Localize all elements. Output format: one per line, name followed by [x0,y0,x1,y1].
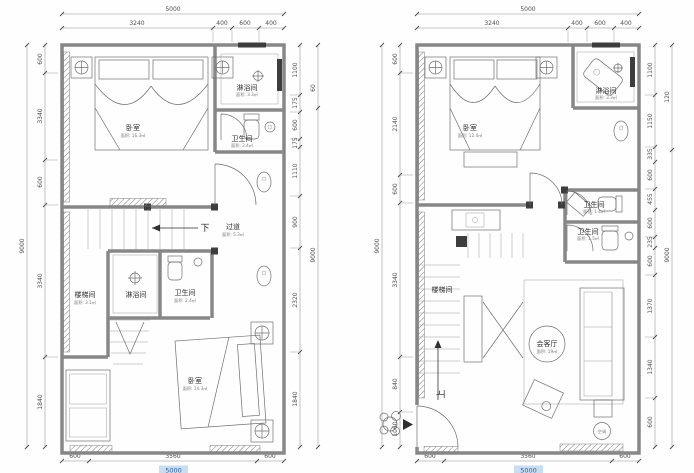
dim-label: 1840 [37,394,44,409]
room-area: 面积: 16.3㎡ [121,132,146,139]
dim-label: 600 [594,20,606,27]
dim-label: 400 [620,20,632,27]
dim-label: 120 [664,91,671,103]
dim-label: 1100 [292,62,299,77]
dim-label: 400 [216,20,228,27]
dim-label: 400 [265,20,277,27]
dim-label: 3240 [484,20,499,27]
dim-label: 600 [292,119,299,131]
dim-label: 175 [292,137,299,149]
floor-plan-sheet: 5000 3240 400 600 400 9000 600 3340 600 … [0,0,694,473]
room-area: 面积: 5.3㎡ [222,231,245,238]
room-label: 楼梯间 [432,285,453,294]
dim-label: 600 [239,20,251,27]
room-label: 卧室 [463,123,477,132]
room-label: 会客厅 [537,339,558,348]
plan-left-room-labels: 卧室 面积: 16.3㎡ 淋浴间 面积: 3.3㎡ 卫生间 面积: 2.4㎡ 下… [74,83,259,392]
dim-label: 1370 [647,298,654,313]
dim-label: 235 [647,236,654,248]
room-area: 面积: 2.4㎡ [174,297,197,304]
plan-left: 5000 3240 400 600 400 9000 600 3340 600 … [19,6,320,473]
room-label: 卧室 [126,123,140,132]
dim-label: 900 [292,216,299,228]
dim-label: 1840 [292,391,299,406]
dim-label: 9000 [374,238,381,253]
dim-label: 840 [392,378,399,390]
dim-label: 3340 [392,272,399,287]
room-area: 面积: 3.1㎡ [74,299,97,306]
room-label: 卫生间 [232,134,253,143]
plan-right: 5000 3240 400 600 400 9000 600 2140 600 … [374,6,674,473]
dim-label: 400 [571,20,583,27]
room-area: 面积: 3.3㎡ [595,94,618,101]
room-area: 面积: 14.3㎡ [183,385,208,392]
dim-label: 600 [647,416,654,428]
room-label: 卧室 [188,376,202,385]
dim-label: 600 [392,53,399,65]
room-area: 面积: 12.4㎡ [458,132,483,139]
dim-label: 1150 [647,113,654,128]
room-label: 过道 [226,222,240,231]
room-label: 淋浴间 [237,83,258,92]
room-label: 楼梯间 [75,290,96,299]
dim-label: 60 [310,84,317,92]
dim-label: 5000 [520,6,535,13]
room-area: 面积: 1.4㎡ [583,208,606,215]
room-label: 淋浴间 [596,86,617,95]
dim-label: 9000 [310,247,317,262]
dim-label: 2140 [392,116,399,131]
direction-label: 上 [436,389,447,398]
dim-label: 3340 [37,108,44,123]
dim-label: 1110 [292,163,299,178]
room-label: 卫生间 [578,227,599,236]
room-label: 淋浴间 [126,290,147,299]
dim-label: 600 [647,255,654,267]
room-area: 面积: 19㎡ [537,348,558,355]
room-label: 空调 [598,428,606,435]
room-area: 面积: 3.3㎡ [236,91,259,98]
dim-label: 3340 [37,273,44,288]
dim-label: 600 [392,183,399,195]
dim-label: 2320 [292,292,299,307]
dim-label: 5000 [165,467,182,473]
dim-label: 175 [292,97,299,109]
room-area: 面积: 2.4㎡ [231,142,254,149]
dim-label: 1100 [647,62,654,77]
room-area: 面积: 1.5㎡ [577,235,600,242]
dim-label: 455 [647,193,654,205]
room-label: 卫生间 [175,288,196,297]
dim-label: 335 [647,148,654,160]
dim-label: 9000 [19,238,26,253]
dim-label: 600 [37,53,44,65]
dim-label: 5000 [165,6,180,13]
dim-label: 9000 [664,247,671,262]
room-label: 卫生间 [584,200,605,209]
dim-label: 600 [647,217,654,229]
floor-plan-drawing: 5000 3240 400 600 400 9000 600 3340 600 … [0,0,694,473]
plan-right-furniture [380,52,635,452]
dim-label: 600 [647,169,654,181]
dim-label: 1340 [647,359,654,374]
dim-label: 3240 [129,20,144,27]
direction-label: 下 [200,224,209,234]
dim-label: 5000 [520,467,537,473]
dim-label: 600 [37,176,44,188]
